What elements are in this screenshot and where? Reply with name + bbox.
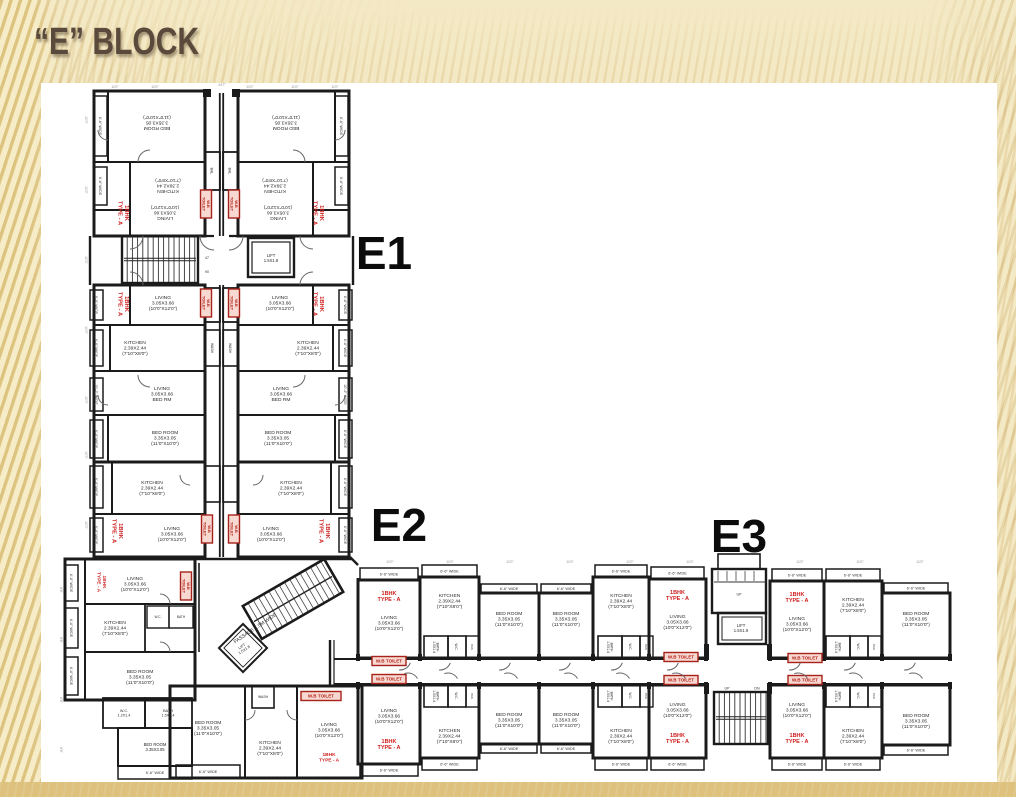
svg-text:BED ROOM3.35X3.05(11'0"X10'0"): BED ROOM3.35X3.05(11'0"X10'0") [902, 713, 930, 730]
svg-text:11'0": 11'0" [566, 560, 574, 564]
svg-text:LIVING3.05X3.66(10'0"X12'0"): LIVING3.05X3.66(10'0"X12'0") [663, 702, 692, 719]
svg-text:1BHKTYPE - A: 1BHKTYPE - A [111, 519, 123, 544]
svg-text:10'0": 10'0" [84, 451, 88, 459]
svg-text:11'0": 11'0" [796, 560, 804, 564]
svg-text:E1: E1 [356, 227, 412, 279]
svg-text:W.C.: W.C. [628, 644, 632, 651]
svg-text:W.B TOILET: W.B TOILET [376, 659, 402, 664]
svg-text:WASH: WASH [210, 343, 214, 354]
svg-text:1BHKTYPE - A: 1BHKTYPE - A [318, 519, 330, 544]
svg-text:BAL: BAL [228, 168, 232, 175]
svg-text:WASH: WASH [258, 695, 269, 699]
svg-text:BED ROOM3.35X3.05(11'0"X10'0"): BED ROOM3.35X3.05(11'0"X10'0") [126, 669, 154, 686]
svg-text:PAS: PAS [470, 693, 474, 699]
svg-text:6'-6" WIDE: 6'-6" WIDE [343, 478, 347, 497]
svg-text:10'0": 10'0" [84, 256, 88, 264]
svg-text:BED ROOM3.35X3.05(11'0"X10'0"): BED ROOM3.35X3.05(11'0"X10'0") [151, 430, 179, 447]
svg-text:6'6": 6'6" [59, 697, 63, 703]
svg-text:6'-6" WIDE: 6'-6" WIDE [907, 748, 926, 752]
svg-text:6'-6" WIDE: 6'-6" WIDE [69, 574, 73, 593]
svg-text:BAL: BAL [210, 168, 214, 175]
svg-text:1BHKTYPE - A: 1BHKTYPE - A [117, 292, 129, 317]
svg-text:6'-6" WIDE: 6'-6" WIDE [440, 569, 459, 573]
svg-text:6'-6" WIDE: 6'-6" WIDE [500, 587, 519, 591]
svg-text:1BHKTYPE - A: 1BHKTYPE - A [666, 733, 689, 745]
svg-text:11'0": 11'0" [686, 560, 694, 564]
svg-text:1BHKTYPE - A: 1BHKTYPE - A [377, 591, 400, 603]
svg-text:E2: E2 [371, 499, 427, 551]
svg-text:KITCHEN2.39X2.44(7'10"X8'0"): KITCHEN2.39X2.44(7'10"X8'0") [257, 740, 283, 757]
svg-text:6'-6" WIDE: 6'-6" WIDE [844, 762, 863, 766]
svg-text:6'-6" WIDE: 6'-6" WIDE [612, 569, 631, 573]
svg-text:E3: E3 [711, 510, 767, 562]
svg-text:BED ROOM3.35X3.05(11'0"X10'0"): BED ROOM3.35X3.05(11'0"X10'0") [264, 430, 292, 447]
svg-text:LIVING3.05X3.66(10'0"X12'0"): LIVING3.05X3.66(10'0"X12'0") [149, 295, 178, 312]
svg-text:BED ROOM3.35X3.05(11'0"X10'0"): BED ROOM3.35X3.05(11'0"X10'0") [143, 114, 171, 131]
svg-text:BED ROOM3.35X3.05(11'0"X10'0"): BED ROOM3.35X3.05(11'0"X10'0") [495, 712, 523, 729]
svg-text:1BHKTYPE - A: 1BHKTYPE - A [117, 201, 129, 226]
svg-text:6'-6" WIDE: 6'-6" WIDE [500, 747, 519, 751]
svg-text:PAS: PAS [470, 644, 474, 650]
svg-text:BATH: BATH [177, 615, 186, 619]
svg-text:6'-6" WIDE: 6'-6" WIDE [343, 296, 347, 315]
svg-text:6'-6" WIDE: 6'-6" WIDE [146, 771, 165, 775]
svg-text:PAS: PAS [644, 693, 648, 699]
svg-text:11'0": 11'0" [856, 560, 864, 564]
svg-text:6'-6" WIDE: 6'-6" WIDE [94, 430, 98, 449]
svg-text:BATH1.5X1.4: BATH1.5X1.4 [161, 709, 174, 717]
svg-text:6'-6" WIDE: 6'-6" WIDE [612, 762, 631, 766]
svg-text:10'0": 10'0" [84, 186, 88, 194]
svg-text:6'-6" WIDE: 6'-6" WIDE [339, 177, 343, 196]
svg-text:KITCHEN2.39X2.44(7'10"X8'0"): KITCHEN2.39X2.44(7'10"X8'0") [278, 480, 304, 497]
svg-text:LIFT1.5X1.8: LIFT1.5X1.8 [264, 253, 279, 263]
svg-text:W.C.: W.C. [856, 693, 860, 700]
svg-text:6'6": 6'6" [59, 637, 63, 643]
svg-text:WASH: WASH [228, 343, 232, 354]
svg-text:6'-6" WIDE: 6'-6" WIDE [343, 430, 347, 449]
svg-text:KITCHEN2.39X2.44(7'10"X8'0"): KITCHEN2.39X2.44(7'10"X8'0") [262, 177, 288, 194]
svg-text:LIVING3.05X3.66(10'0"X12'0"): LIVING3.05X3.66(10'0"X12'0") [783, 702, 812, 719]
svg-text:BED ROOM3.35X3.05(11'0"X10'0"): BED ROOM3.35X3.05(11'0"X10'0") [552, 611, 580, 628]
svg-text:W.C.1.2X1.4: W.C.1.2X1.4 [117, 709, 130, 717]
svg-text:6'-6" WIDE: 6'-6" WIDE [339, 117, 343, 136]
svg-text:1BHKTYPE - A: 1BHKTYPE - A [96, 572, 107, 593]
svg-text:LIVING3.05X3.66(10'0"X12'0"): LIVING3.05X3.66(10'0"X12'0") [257, 526, 286, 543]
svg-text:DN: DN [754, 686, 760, 690]
svg-text:6'-6" WIDE: 6'-6" WIDE [907, 586, 926, 590]
svg-text:6'-6" WIDE: 6'-6" WIDE [844, 573, 863, 577]
svg-text:6'6": 6'6" [59, 587, 63, 593]
svg-text:LIVING3.05X3.66(10'0"X12'0"): LIVING3.05X3.66(10'0"X12'0") [783, 616, 812, 633]
svg-text:6'-6" WIDE: 6'-6" WIDE [98, 177, 102, 196]
svg-text:BATH1.5X1.4: BATH1.5X1.4 [606, 641, 614, 653]
svg-text:LIVING3.05X3.66BED RM: LIVING3.05X3.66BED RM [151, 386, 174, 403]
svg-text:6'-6" WIDE: 6'-6" WIDE [343, 339, 347, 358]
svg-text:6'-6" WIDE: 6'-6" WIDE [440, 762, 459, 766]
svg-text:LIVING3.05X3.66(10'0"X12'0"): LIVING3.05X3.66(10'0"X12'0") [663, 614, 692, 631]
svg-text:47: 47 [205, 256, 209, 260]
svg-text:BED ROOM3.35X3.05(11'0"X10'0"): BED ROOM3.35X3.05(11'0"X10'0") [495, 611, 523, 628]
svg-text:LIVING3.05X3.66(10'0"X12'0"): LIVING3.05X3.66(10'0"X12'0") [315, 722, 344, 739]
svg-text:10'0": 10'0" [84, 326, 88, 334]
svg-text:LIVING3.05X3.66(10'0"X12'0"): LIVING3.05X3.66(10'0"X12'0") [121, 576, 150, 593]
svg-text:W.C.: W.C. [155, 615, 162, 619]
svg-text:90: 90 [205, 270, 209, 274]
svg-text:LIVING3.05X3.66(10'0"X12'0"): LIVING3.05X3.66(10'0"X12'0") [375, 708, 404, 725]
svg-text:6'-6" WIDE: 6'-6" WIDE [380, 572, 399, 576]
svg-text:11'0": 11'0" [111, 85, 119, 89]
svg-text:PAS: PAS [872, 693, 876, 699]
svg-text:KITCHEN2.39X2.44(7'10"X8'0"): KITCHEN2.39X2.44(7'10"X8'0") [840, 597, 866, 614]
svg-text:W.C.: W.C. [454, 644, 458, 651]
svg-text:6'-6" WIDE: 6'-6" WIDE [788, 573, 807, 577]
svg-text:W.B TOILET: W.B TOILET [792, 678, 818, 683]
svg-text:11'0": 11'0" [626, 560, 634, 564]
svg-text:W.B TOILET: W.B TOILET [792, 656, 818, 661]
svg-text:KITCHEN2.39X2.44(7'10"X8'0"): KITCHEN2.39X2.44(7'10"X8'0") [840, 728, 866, 745]
svg-text:KITCHEN2.39X2.44(7'10"X8'0"): KITCHEN2.39X2.44(7'10"X8'0") [155, 177, 181, 194]
svg-text:BED ROOM3.35X3.05: BED ROOM3.35X3.05 [144, 742, 167, 752]
svg-text:W.C.: W.C. [628, 693, 632, 700]
svg-text:1BHKTYPE - A: 1BHKTYPE - A [377, 739, 400, 751]
svg-text:LIVING3.05X3.66(10'0"X12'0"): LIVING3.05X3.66(10'0"X12'0") [158, 526, 187, 543]
svg-text:W.C.: W.C. [856, 644, 860, 651]
svg-text:1BHKTYPE - A: 1BHKTYPE - A [319, 752, 340, 763]
svg-text:6'6": 6'6" [59, 747, 63, 753]
svg-text:10'0": 10'0" [84, 116, 88, 124]
svg-text:6'-6" WIDE: 6'-6" WIDE [668, 571, 687, 575]
svg-text:PAS: PAS [872, 644, 876, 650]
svg-text:10'0": 10'0" [84, 521, 88, 529]
svg-text:11'0": 11'0" [386, 560, 394, 564]
svg-text:BED ROOM3.35X3.05(11'0"X10'0"): BED ROOM3.35X3.05(11'0"X10'0") [552, 712, 580, 729]
svg-text:11'0": 11'0" [246, 85, 254, 89]
svg-text:11'0": 11'0" [291, 85, 299, 89]
svg-text:KITCHEN2.39X2.44(7'10"X8'0"): KITCHEN2.39X2.44(7'10"X8'0") [102, 620, 128, 637]
svg-text:11'0": 11'0" [506, 560, 514, 564]
svg-text:6'-6" WIDE: 6'-6" WIDE [788, 762, 807, 766]
svg-text:1BHKTYPE - A: 1BHKTYPE - A [666, 590, 689, 602]
svg-text:LIFT1.5X1.9: LIFT1.5X1.9 [734, 623, 749, 633]
svg-text:1BHKTYPE - A: 1BHKTYPE - A [785, 592, 808, 604]
svg-text:10'-2" WIDE: 10'-2" WIDE [343, 384, 347, 405]
svg-text:24'7": 24'7" [218, 83, 226, 87]
svg-text:6'-6" WIDE: 6'-6" WIDE [94, 478, 98, 497]
svg-text:W.B TOILET: W.B TOILET [376, 677, 402, 682]
svg-text:UP: UP [725, 686, 731, 690]
svg-text:LIVING3.05X3.66(10'0"X12'0"): LIVING3.05X3.66(10'0"X12'0") [151, 204, 180, 221]
svg-text:KITCHEN2.39X2.44(7'10"X8'0"): KITCHEN2.39X2.44(7'10"X8'0") [608, 593, 634, 610]
svg-text:BED ROOM3.35X3.05(11'0"X10'0"): BED ROOM3.35X3.05(11'0"X10'0") [902, 611, 930, 628]
svg-text:11'0": 11'0" [331, 85, 339, 89]
svg-text:6'-6" WIDE: 6'-6" WIDE [557, 587, 576, 591]
svg-text:LIVING3.05X3.66BED RM: LIVING3.05X3.66BED RM [270, 386, 293, 403]
svg-text:1BHKTYPE - A: 1BHKTYPE - A [312, 201, 324, 226]
svg-text:BATH1.5X1.4: BATH1.5X1.4 [606, 690, 614, 702]
svg-text:KITCHEN2.39X2.44(7'10"X8'0"): KITCHEN2.39X2.44(7'10"X8'0") [437, 593, 463, 610]
svg-text:6'-6" WIDE: 6'-6" WIDE [94, 296, 98, 315]
svg-text:11'0": 11'0" [151, 85, 159, 89]
svg-text:BED ROOM3.35X3.05(11'0"X10'0"): BED ROOM3.35X3.05(11'0"X10'0") [272, 114, 300, 131]
svg-text:6'-6" WIDE: 6'-6" WIDE [69, 619, 73, 638]
svg-text:6'-6" WIDE: 6'-6" WIDE [380, 768, 399, 772]
svg-text:W.B TOILET: W.B TOILET [668, 678, 694, 683]
svg-text:BATH1.5X1.4: BATH1.5X1.4 [432, 641, 440, 653]
svg-text:11'0": 11'0" [446, 560, 454, 564]
svg-text:BED ROOM3.35X3.05(11'0"X10'0"): BED ROOM3.35X3.05(11'0"X10'0") [194, 720, 222, 737]
svg-text:LIVING3.05X3.66(10'0"X12'0"): LIVING3.05X3.66(10'0"X12'0") [375, 615, 404, 632]
svg-text:W.C.: W.C. [454, 693, 458, 700]
svg-text:W.B TOILET: W.B TOILET [308, 694, 334, 699]
svg-text:BATH1.5X1.4: BATH1.5X1.4 [834, 690, 842, 702]
svg-text:6'-6" WIDE: 6'-6" WIDE [199, 770, 218, 774]
svg-text:KITCHEN2.39X2.44(7'10"X8'0"): KITCHEN2.39X2.44(7'10"X8'0") [295, 340, 321, 357]
svg-text:LIVING3.05X3.66(10'0"X12'0"): LIVING3.05X3.66(10'0"X12'0") [266, 295, 295, 312]
svg-text:W.B TOILET: W.B TOILET [668, 655, 694, 660]
svg-text:6'-6" WIDE: 6'-6" WIDE [668, 762, 687, 766]
svg-text:11'0": 11'0" [916, 560, 924, 564]
svg-text:10'-2" WIDE: 10'-2" WIDE [94, 384, 98, 405]
svg-text:LIVING3.05X3.66(10'0"X12'0"): LIVING3.05X3.66(10'0"X12'0") [264, 204, 293, 221]
svg-text:KITCHEN2.39X2.44(7'10"X8'0"): KITCHEN2.39X2.44(7'10"X8'0") [608, 728, 634, 745]
svg-text:UP: UP [737, 592, 743, 596]
svg-text:1BHKTYPE - A: 1BHKTYPE - A [312, 292, 324, 317]
svg-text:PAS: PAS [644, 644, 648, 650]
svg-text:KITCHEN2.39X2.44(7'10"X8'0"): KITCHEN2.39X2.44(7'10"X8'0") [437, 728, 463, 745]
svg-text:KITCHEN2.39X2.44(7'10"X8'0"): KITCHEN2.39X2.44(7'10"X8'0") [139, 480, 165, 497]
svg-text:6'-6" WIDE: 6'-6" WIDE [557, 747, 576, 751]
svg-text:10'0": 10'0" [84, 396, 88, 404]
svg-text:1BHKTYPE - A: 1BHKTYPE - A [785, 733, 808, 745]
svg-text:KITCHEN2.39X2.44(7'10"X8'0"): KITCHEN2.39X2.44(7'10"X8'0") [122, 340, 148, 357]
svg-text:BATH1.5X1.4: BATH1.5X1.4 [834, 641, 842, 653]
svg-text:6'-6" WIDE: 6'-6" WIDE [343, 526, 347, 545]
svg-text:BATH1.5X1.4: BATH1.5X1.4 [432, 690, 440, 702]
svg-text:6'-6" WIDE: 6'-6" WIDE [94, 339, 98, 358]
svg-text:6'-6" WIDE: 6'-6" WIDE [69, 667, 73, 686]
svg-text:6'-6" WIDE: 6'-6" WIDE [94, 526, 98, 545]
